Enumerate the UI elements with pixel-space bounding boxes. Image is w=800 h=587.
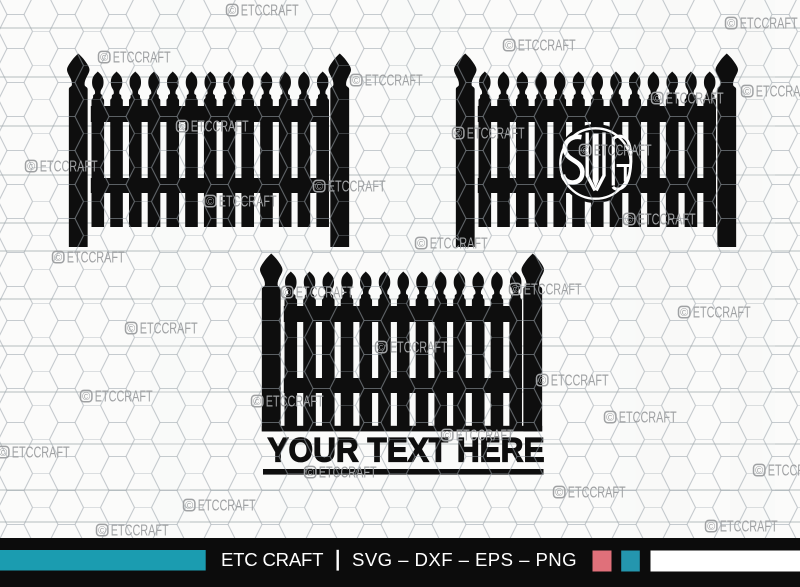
svg-text:ETC CRAFT: ETC CRAFT bbox=[221, 549, 324, 570]
svg-text:SVG – DXF – EPS – PNG: SVG – DXF – EPS – PNG bbox=[352, 549, 577, 570]
